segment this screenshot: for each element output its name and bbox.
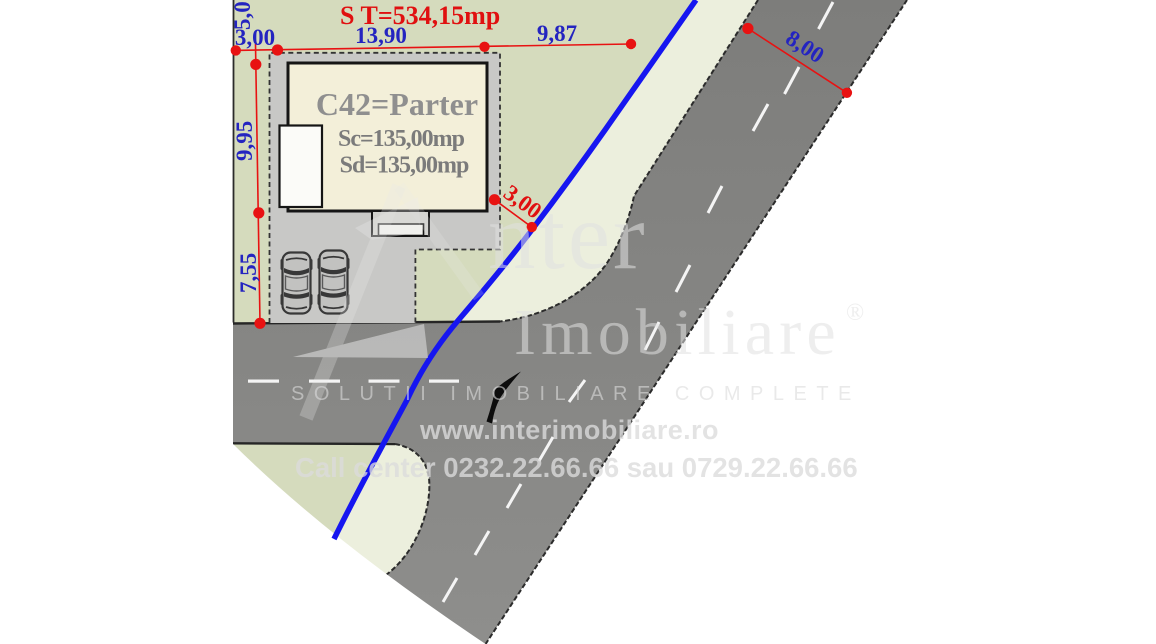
svg-text:Imobiliare: Imobiliare <box>514 296 841 369</box>
svg-text:®: ® <box>846 300 864 326</box>
svg-text:13,90: 13,90 <box>355 23 407 48</box>
svg-text:7,55: 7,55 <box>236 253 261 293</box>
svg-text:Sd=135,00mp: Sd=135,00mp <box>340 153 469 179</box>
svg-text:C42=Parter: C42=Parter <box>316 86 478 122</box>
svg-text:5,0: 5,0 <box>230 1 255 30</box>
svg-text:nter: nter <box>488 183 648 289</box>
svg-text:SOLUTII IMOBILIARE COMPLETE: SOLUTII IMOBILIARE COMPLETE <box>291 383 861 405</box>
svg-text:Call center 0232.22.66.66 sau: Call center 0232.22.66.66 sau 0729.22.66… <box>295 452 858 483</box>
svg-text:9,95: 9,95 <box>232 121 257 161</box>
svg-text:9,87: 9,87 <box>537 21 577 46</box>
svg-text:Sc=135,00mp: Sc=135,00mp <box>338 126 465 152</box>
svg-text:www.interimobiliare.ro: www.interimobiliare.ro <box>419 415 719 445</box>
